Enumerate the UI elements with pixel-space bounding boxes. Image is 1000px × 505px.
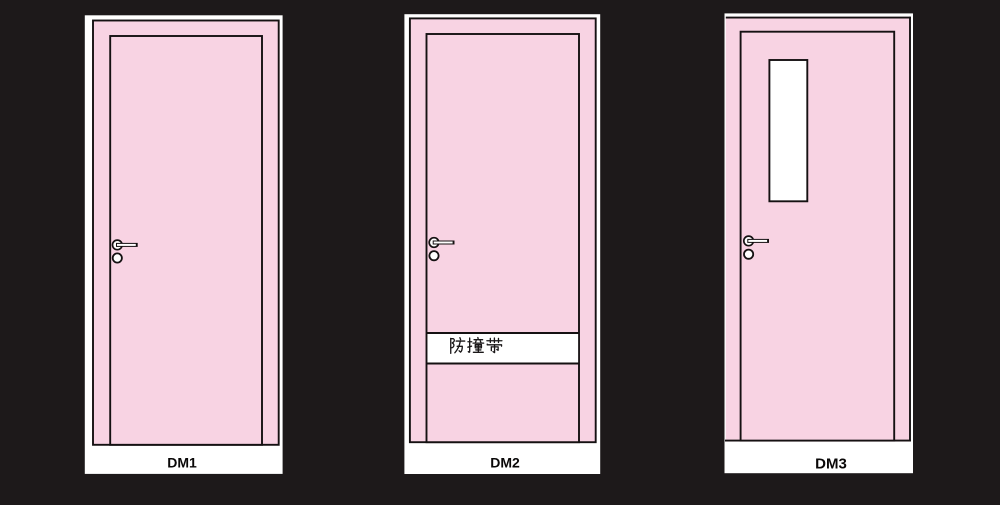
svg-text:DM1: DM1 <box>167 455 197 471</box>
svg-text:DM2: DM2 <box>490 455 520 471</box>
svg-text:DM3: DM3 <box>815 456 847 473</box>
